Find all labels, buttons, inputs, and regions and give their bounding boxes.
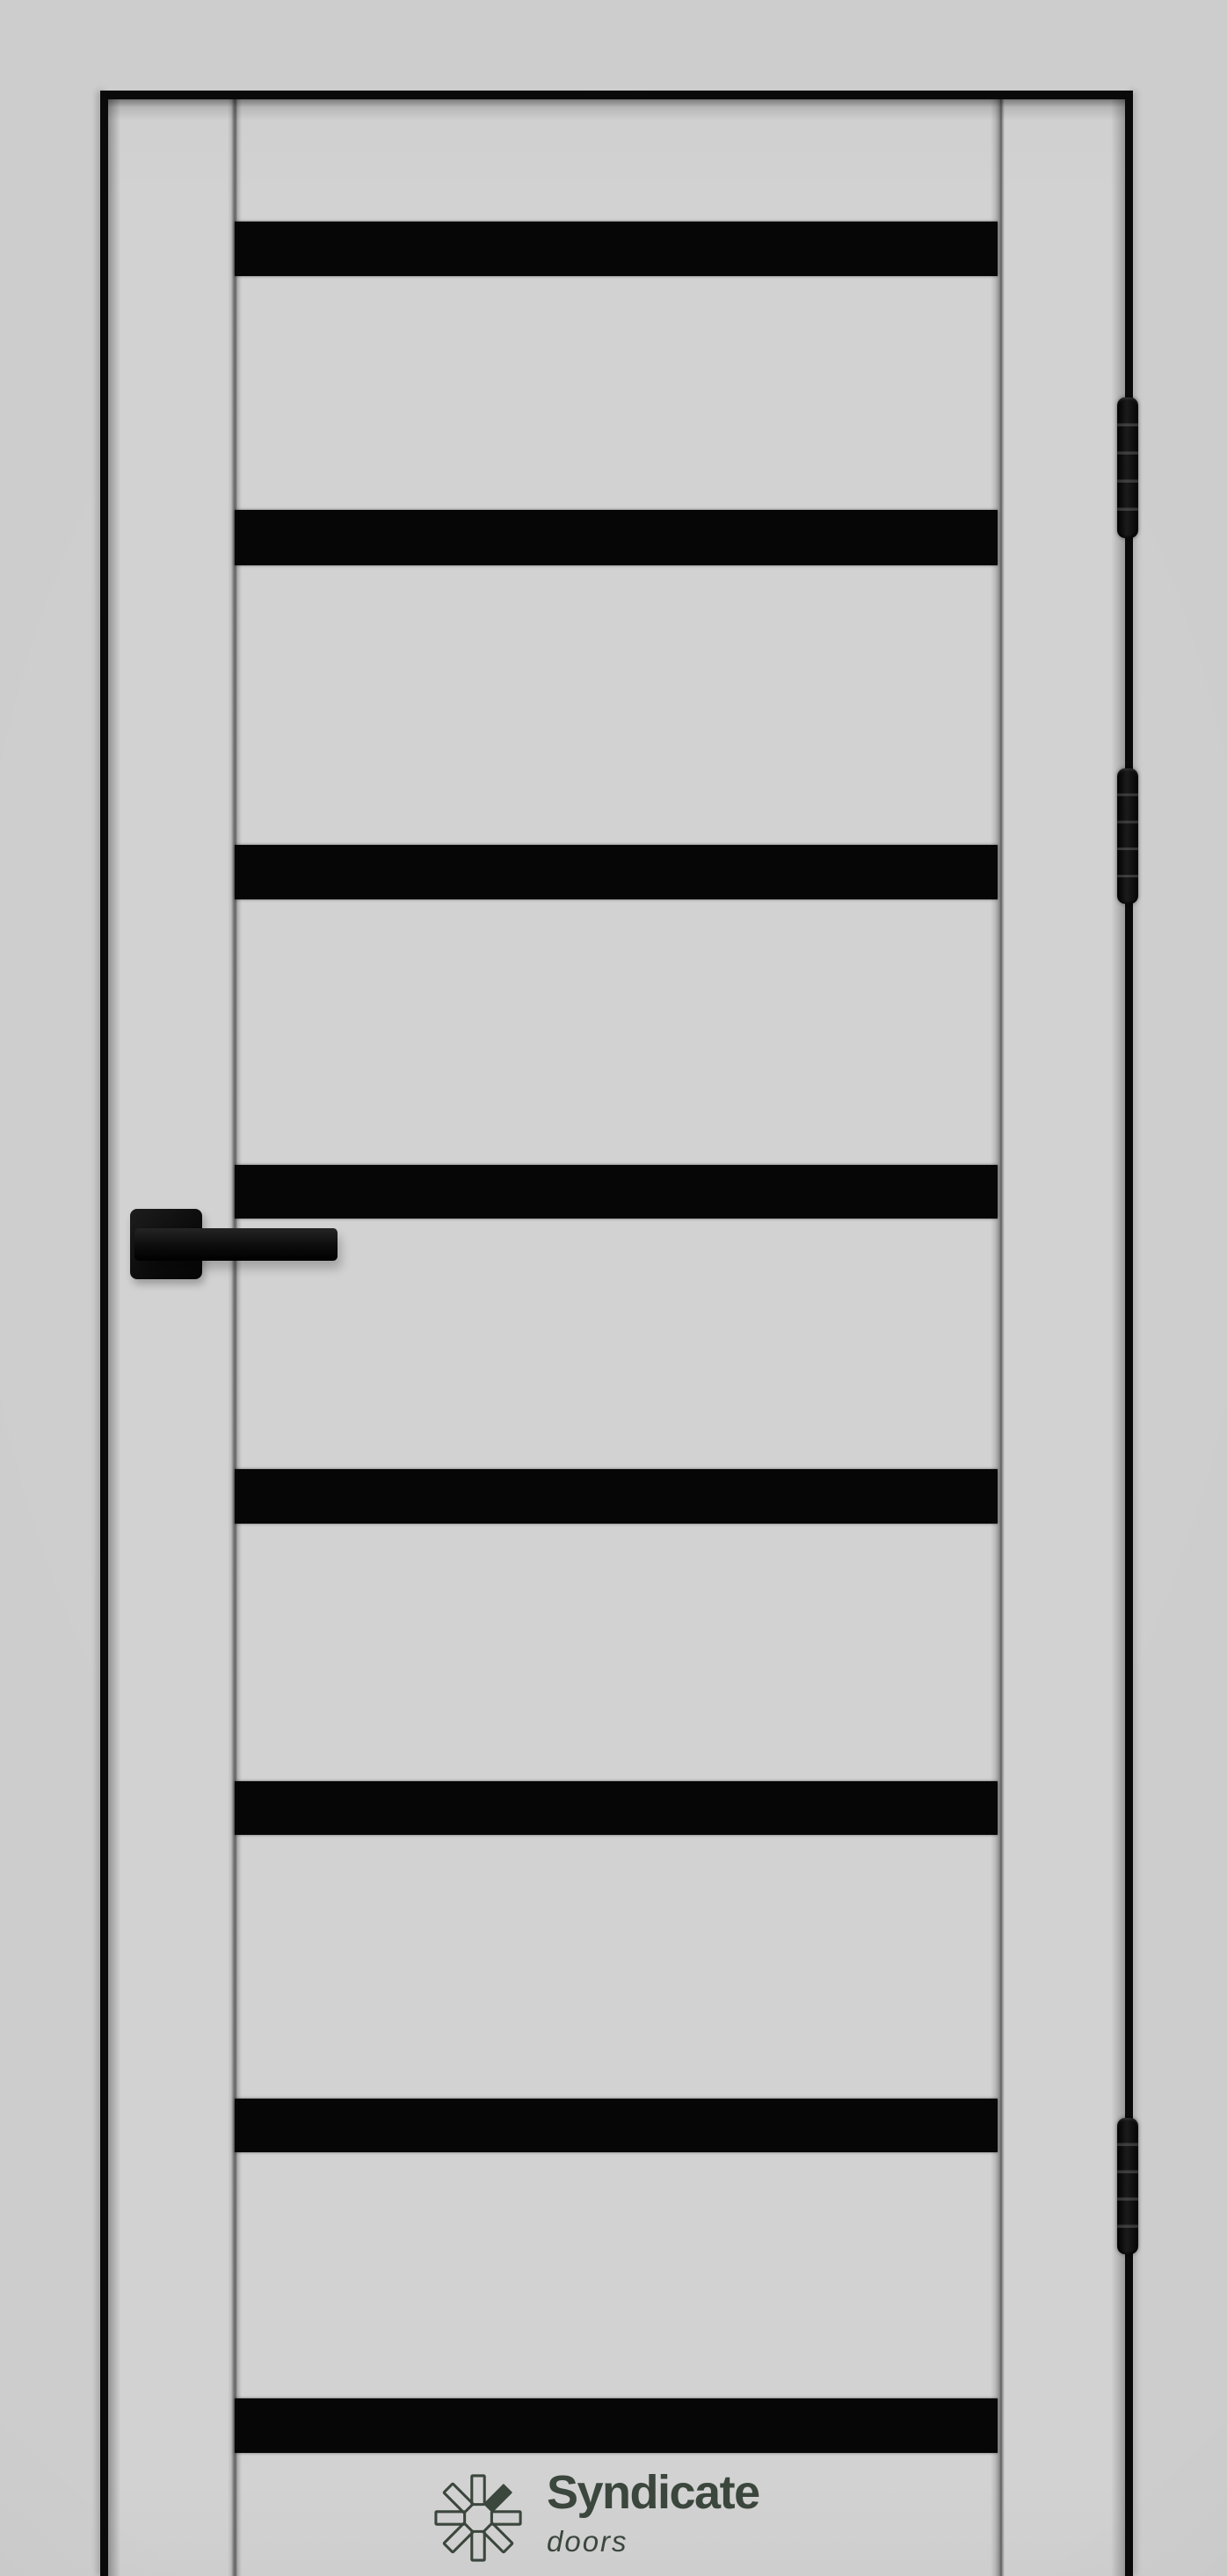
brand-tagline: doors [547,2527,759,2556]
door-hinge [1117,768,1138,904]
glass-stripe [235,510,998,565]
glass-stripe [235,2398,998,2453]
glass-stripe [235,2099,998,2152]
glass-stripe [235,1781,998,1835]
door-frame-left [100,91,108,2576]
door-product-photo: Syndicate doors [0,0,1227,2576]
glass-stripe [235,222,998,276]
glass-stripe [235,845,998,899]
glass-stripe [235,1469,998,1524]
door-hinge [1117,397,1138,538]
handle-lever [134,1228,338,1261]
glass-stripe [235,1165,998,1219]
hinges-group [1117,0,1138,2576]
door-hinge [1117,2118,1138,2254]
brand-logo: Syndicate doors [434,2472,759,2562]
brand-text-block: Syndicate doors [547,2469,759,2556]
brand-name: Syndicate [547,2469,759,2516]
syndicate-logo-icon [434,2474,522,2562]
glass-stripes-group [235,0,998,2576]
